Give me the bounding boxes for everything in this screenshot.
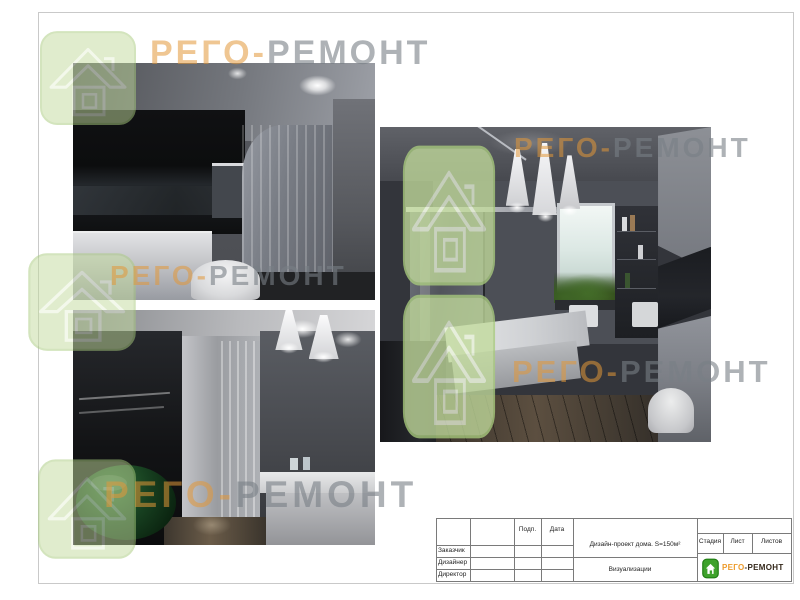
watermark-text-right: РЕМОНТ [620, 354, 771, 389]
house-watermark-icon [401, 287, 497, 443]
house-watermark-icon [38, 26, 138, 128]
watermark-text-left: РЕГО [512, 354, 607, 389]
logo-text-right: РЕМОНТ [748, 563, 784, 572]
watermark-text-sep: - [219, 474, 235, 515]
stage-label: Стадия [697, 539, 723, 546]
role-label-designer: Дизайнер [438, 560, 467, 567]
glass-tumbler [290, 458, 298, 470]
bottle [638, 245, 643, 259]
lamp-glow [310, 350, 337, 364]
sheet-page: РЕГО-РЕМОНТ РЕГО-РЕМОНТ РЕГО-РЕМОНТ РЕГО… [0, 0, 800, 600]
role-label-director: Директор [438, 572, 466, 579]
shower-glass [242, 125, 333, 272]
table-line [436, 545, 573, 546]
towel [632, 302, 658, 327]
watermark-text-right: РЕМОНТ [613, 132, 751, 163]
table-line [697, 533, 792, 534]
glass-tumbler [303, 457, 311, 470]
brand-watermark: РЕГО-РЕМОНТ [110, 260, 347, 292]
lamp-glow [536, 210, 556, 223]
sheets-label: Листов [752, 539, 791, 546]
table-line [436, 518, 437, 582]
watermark-text-right: РЕМОНТ [235, 474, 417, 515]
table-line [697, 518, 698, 582]
sheet-title: Визуализации [575, 567, 685, 574]
watermark-text-left: РЕГО [104, 474, 219, 515]
bottle [622, 217, 627, 231]
watermark-text-left: РЕГО [150, 34, 253, 72]
watermark-text-sep: - [601, 132, 613, 163]
date-column-label: Дата [541, 527, 573, 534]
table-line [436, 518, 792, 519]
watermark-text-right: РЕМОНТ [267, 34, 430, 72]
signature-column-label: Подп. [514, 527, 541, 534]
shelf-line [617, 259, 657, 260]
watermark-text-sep: - [253, 34, 267, 72]
brand-watermark: РЕГО-РЕМОНТ [514, 132, 751, 164]
ceiling-light [293, 72, 341, 98]
watermark-text-right: РЕМОНТ [209, 260, 347, 291]
lamp-glow [507, 201, 527, 214]
watermark-text-sep: - [607, 354, 620, 389]
shelf-line [617, 288, 657, 289]
company-logo: РЕГО-РЕМОНТ [702, 556, 790, 580]
table-line [573, 518, 574, 582]
project-title: Дизайн-проект дома. S=150м² [575, 542, 695, 549]
bottle [630, 215, 635, 231]
lamp-glow [277, 341, 301, 355]
watermark-text-left: РЕГО [514, 132, 601, 163]
bottle [625, 273, 630, 287]
window-plants [554, 272, 619, 304]
brand-watermark: РЕГО-РЕМОНТ [512, 354, 771, 390]
brand-watermark: РЕГО-РЕМОНТ [150, 34, 430, 73]
logo-house-icon [702, 558, 719, 579]
table-line [697, 553, 792, 554]
wall-niche [212, 163, 245, 218]
shelf-line [617, 231, 657, 232]
dark-tile-band [658, 247, 711, 329]
table-line [791, 518, 792, 582]
sheet-label: Лист [723, 539, 752, 546]
table-line [436, 569, 573, 570]
table-line [436, 557, 697, 558]
table-line [470, 518, 471, 582]
table-line [436, 581, 792, 582]
watermark-text-sep: - [197, 260, 209, 291]
title-block: Подп. Дата Заказчик Дизайнер Директор Ди… [436, 518, 792, 582]
logo-wordmark: РЕГО-РЕМОНТ [722, 564, 784, 572]
house-watermark-icon [401, 138, 497, 290]
lamp-glow [560, 204, 578, 217]
logo-text-left: РЕГО [722, 563, 745, 572]
brand-watermark: РЕГО-РЕМОНТ [104, 474, 417, 516]
role-label-customer: Заказчик [438, 548, 465, 555]
watermark-text-left: РЕГО [110, 260, 197, 291]
toilet [648, 388, 694, 432]
